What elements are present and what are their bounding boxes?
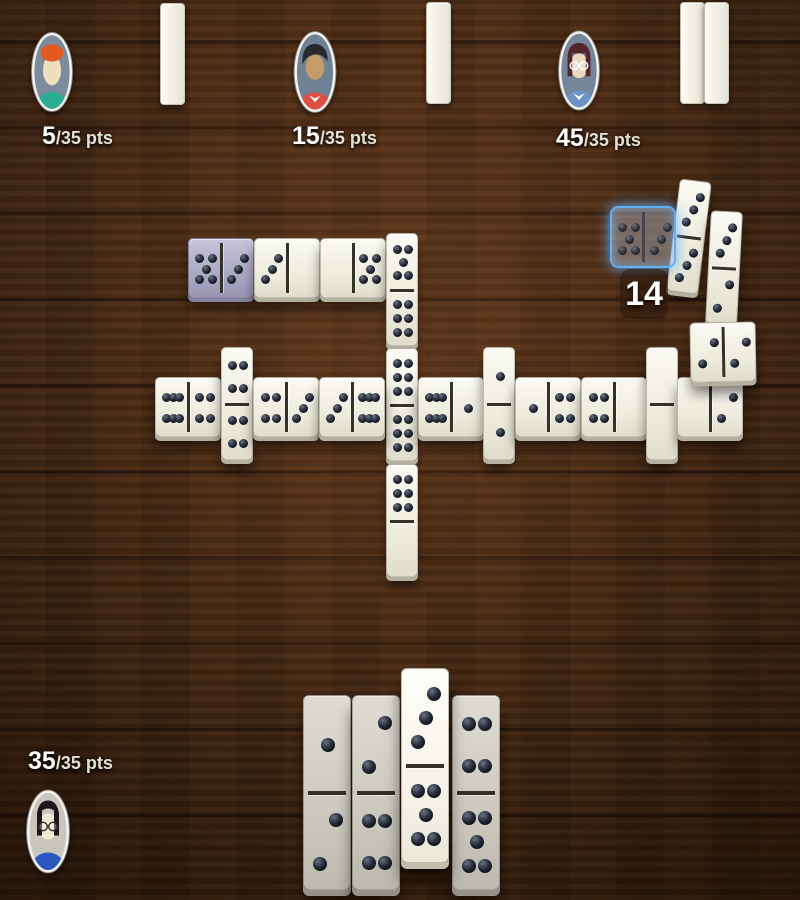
red-pip — [625, 235, 634, 244]
board-domino-tile — [319, 377, 385, 437]
pip — [682, 217, 692, 227]
pip — [404, 271, 413, 280]
board-domino-tile — [581, 377, 647, 437]
tile-divider — [351, 382, 354, 432]
pip — [202, 265, 211, 274]
pip — [399, 258, 408, 267]
pip — [404, 359, 413, 368]
pip — [650, 246, 659, 255]
pip — [427, 687, 441, 701]
pip — [339, 393, 348, 402]
pip — [713, 303, 722, 312]
pip — [566, 393, 575, 402]
pip — [404, 373, 413, 382]
pip — [698, 360, 707, 369]
pip — [299, 404, 308, 413]
pip — [695, 193, 705, 203]
board-domino-tile — [155, 377, 221, 437]
pip — [688, 248, 698, 258]
pip — [478, 759, 492, 773]
board-domino-tile — [320, 238, 386, 298]
tile-divider — [390, 404, 414, 407]
opponent-1-avatar — [31, 30, 73, 114]
hand-tile[interactable] — [352, 695, 400, 890]
pip — [478, 717, 492, 731]
pip — [725, 280, 734, 289]
tile-divider — [225, 403, 249, 406]
pip — [272, 414, 281, 423]
tile-divider — [547, 382, 550, 432]
score-target: /35 pts — [56, 128, 113, 148]
pip — [313, 857, 327, 871]
pip — [393, 245, 402, 254]
pip — [393, 314, 402, 323]
pip — [681, 260, 691, 270]
tile-divider — [286, 243, 289, 293]
pip — [478, 811, 492, 825]
pip — [470, 835, 484, 849]
pip — [675, 272, 685, 282]
pip — [722, 236, 731, 245]
score-value: 35 — [28, 747, 56, 775]
board-domino-tile — [515, 377, 581, 437]
pip — [438, 393, 447, 402]
pip — [716, 249, 725, 258]
pip — [589, 414, 598, 423]
pip — [378, 814, 392, 828]
pip — [529, 404, 538, 413]
board-domino-tile — [418, 377, 484, 437]
red-pip — [261, 275, 270, 284]
tile-divider — [613, 382, 616, 432]
pip — [462, 859, 476, 873]
opponent-2-avatar — [292, 31, 338, 113]
board-domino-tile — [483, 347, 515, 460]
red-pip — [631, 246, 640, 255]
pip — [366, 265, 375, 274]
pip — [717, 414, 726, 423]
tile-divider — [390, 520, 414, 523]
board-domino-tile — [677, 377, 743, 437]
pip — [404, 415, 413, 424]
last-played-tile — [188, 238, 254, 298]
pip — [496, 428, 505, 437]
pip — [728, 224, 737, 233]
tile-divider — [677, 234, 701, 240]
red-pip — [268, 265, 277, 274]
tile-divider — [187, 382, 190, 432]
board-domino-tile — [253, 377, 319, 437]
pip — [359, 254, 368, 263]
pip — [359, 275, 368, 284]
pip — [555, 414, 564, 423]
pip — [378, 716, 392, 730]
pip — [393, 300, 402, 309]
pip — [438, 414, 447, 423]
opponent-tile-back — [704, 2, 729, 104]
red-pip — [618, 246, 627, 255]
pip — [305, 393, 314, 402]
score-target: /35 pts — [320, 128, 377, 148]
pip — [372, 275, 381, 284]
tile-divider — [357, 791, 395, 795]
hand-tile-selected[interactable] — [401, 668, 449, 863]
pip — [362, 760, 376, 774]
pip — [206, 393, 215, 402]
pip — [478, 859, 492, 873]
red-pip — [411, 832, 425, 846]
tile-divider — [709, 382, 712, 432]
pip — [195, 414, 204, 423]
pip — [292, 414, 301, 423]
pip — [239, 361, 248, 370]
pip — [589, 393, 598, 402]
red-pip — [618, 223, 627, 232]
pip — [404, 475, 413, 484]
pip — [464, 404, 473, 413]
pip — [393, 359, 402, 368]
opponent-1-score: 5/35 pts — [42, 122, 113, 151]
board-domino-tile — [386, 233, 418, 346]
tile-divider — [712, 266, 736, 270]
pip — [239, 384, 248, 393]
board-domino-tile — [646, 347, 678, 460]
red-pip — [274, 254, 283, 263]
pip — [688, 205, 698, 215]
tile-divider — [450, 382, 453, 432]
pip — [393, 328, 402, 337]
pip — [419, 711, 433, 725]
opponent-3-avatar — [558, 28, 600, 113]
board-domino-tile — [689, 321, 756, 382]
tile-placement-preview[interactable] — [610, 206, 676, 268]
pip — [462, 717, 476, 731]
placement-points-badge: 14 — [620, 269, 668, 319]
pip — [362, 814, 376, 828]
opponent-tile-back — [426, 2, 451, 104]
pip — [228, 416, 237, 425]
red-pip — [631, 223, 640, 232]
pip — [372, 254, 381, 263]
red-pip — [175, 414, 184, 423]
pip — [208, 254, 217, 263]
pip — [393, 503, 402, 512]
pip — [404, 443, 413, 452]
pip — [462, 759, 476, 773]
tile-divider — [642, 212, 645, 262]
pip — [329, 813, 343, 827]
hand-tile[interactable] — [452, 695, 500, 890]
tile-divider — [220, 243, 223, 293]
pip — [227, 275, 236, 284]
pip — [362, 856, 376, 870]
pip — [411, 735, 425, 749]
pip — [404, 429, 413, 438]
pip — [393, 373, 402, 382]
player-score: 35/35 pts — [28, 747, 113, 776]
pip — [657, 235, 666, 244]
tile-divider — [722, 327, 726, 377]
pip — [272, 393, 281, 402]
dominoes-game-screen: 5/35 pts 15/35 pts 45/35 pts 1 — [0, 0, 800, 900]
pip — [709, 338, 718, 347]
pip — [239, 439, 248, 448]
opponent-2-score: 15/35 pts — [292, 122, 377, 151]
tile-divider — [352, 243, 355, 293]
tile-divider — [650, 403, 674, 406]
red-pip — [175, 393, 184, 402]
pip — [404, 503, 413, 512]
pip — [462, 811, 476, 825]
pip — [228, 439, 237, 448]
pip — [729, 393, 738, 402]
pip — [208, 275, 217, 284]
pip — [496, 372, 505, 381]
pip — [393, 429, 402, 438]
red-pip — [427, 784, 441, 798]
pip — [239, 416, 248, 425]
pip — [240, 254, 249, 263]
pip — [404, 328, 413, 337]
pip — [663, 223, 672, 232]
pip — [404, 245, 413, 254]
pip — [393, 415, 402, 424]
pip — [206, 414, 215, 423]
opponent-tile-back — [680, 2, 705, 104]
pip — [333, 404, 342, 413]
score-target: /35 pts — [584, 130, 641, 150]
board-domino-tile — [221, 347, 253, 460]
pip — [261, 414, 270, 423]
pip — [566, 414, 575, 423]
pip — [393, 443, 402, 452]
pip — [555, 393, 564, 402]
pip — [326, 414, 335, 423]
pip — [234, 265, 243, 274]
red-pip — [427, 832, 441, 846]
board-domino-tile — [386, 464, 418, 577]
pip — [393, 271, 402, 280]
opponent-3-score: 45/35 pts — [556, 124, 641, 153]
pip — [404, 300, 413, 309]
pip — [321, 738, 335, 752]
tile-divider — [487, 403, 511, 406]
tile-divider — [308, 791, 346, 795]
pip — [404, 489, 413, 498]
pip — [195, 254, 204, 263]
score-value: 15 — [292, 122, 320, 150]
pip — [228, 384, 237, 393]
pip — [371, 414, 380, 423]
score-value: 45 — [556, 124, 584, 152]
score-value: 5 — [42, 122, 56, 150]
pip — [600, 393, 609, 402]
player-avatar — [26, 788, 70, 875]
pip — [404, 314, 413, 323]
board-domino-tile — [705, 210, 743, 325]
pip — [195, 275, 204, 284]
pip — [730, 359, 739, 368]
opponent-tile-back — [160, 3, 185, 105]
pip — [195, 393, 204, 402]
pip — [741, 337, 750, 346]
pip — [600, 414, 609, 423]
pip — [393, 489, 402, 498]
score-target: /35 pts — [56, 753, 113, 773]
pip — [261, 393, 270, 402]
red-pip — [419, 808, 433, 822]
pip — [371, 393, 380, 402]
pip — [393, 475, 402, 484]
pip — [404, 387, 413, 396]
board-domino-tile — [386, 348, 418, 461]
tile-divider — [285, 382, 288, 432]
tile-divider — [390, 289, 414, 292]
tile-divider — [406, 764, 444, 768]
hand-tile[interactable] — [303, 695, 351, 890]
red-pip — [411, 784, 425, 798]
pip — [228, 361, 237, 370]
board-domino-tile — [254, 238, 320, 298]
pip — [393, 387, 402, 396]
tile-divider — [457, 791, 495, 795]
pip — [378, 856, 392, 870]
